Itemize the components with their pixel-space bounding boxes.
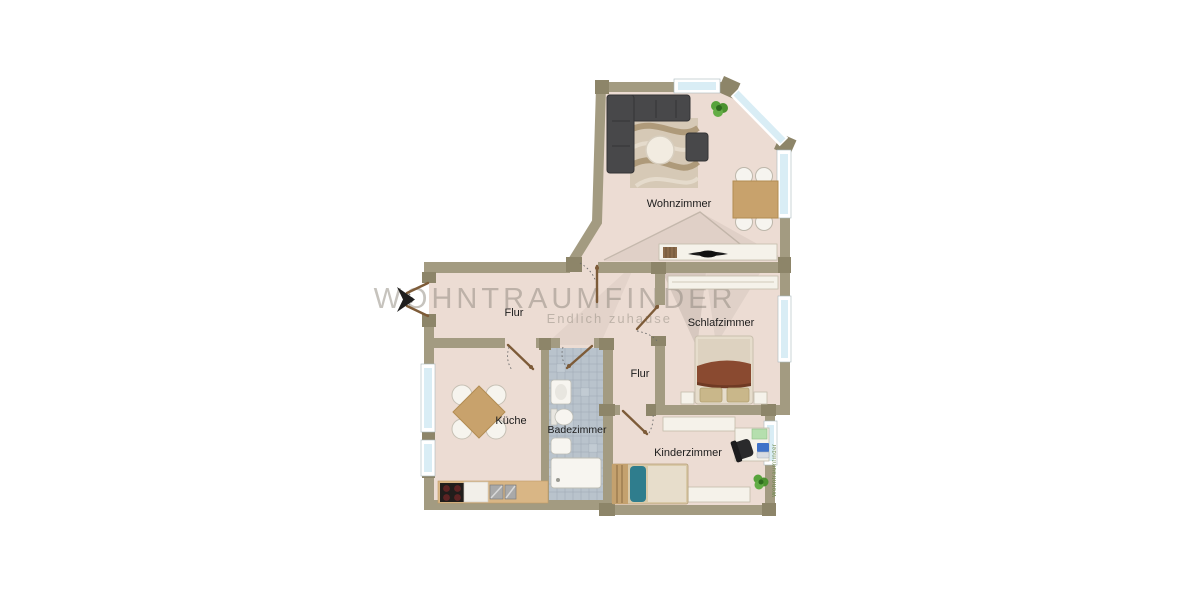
desk [730, 428, 769, 463]
toilet [551, 409, 573, 425]
coffee-table [646, 136, 674, 164]
notepad [752, 429, 767, 439]
label-flur: Flur [505, 307, 524, 319]
window-schlafzimmer [778, 296, 791, 362]
floorplan: WOHNTRAUMFINDER Endlich zuhause [0, 0, 1200, 600]
armchair [686, 133, 708, 161]
dining-table [733, 181, 778, 218]
single-bed [612, 464, 688, 504]
tv-sideboard [659, 244, 777, 260]
kitchen-sink-icon [490, 485, 516, 499]
floorplan-canvas: WOHNTRAUMFINDER Endlich zuhause [0, 0, 1200, 600]
wardrobe [668, 276, 778, 289]
label-schlafzimmer: Schlafzimmer [688, 317, 755, 329]
window-kueche-2 [421, 440, 435, 476]
shelf-bottom [688, 487, 750, 502]
label-kueche: Küche [495, 415, 526, 427]
label-wohnzimmer: Wohnzimmer [647, 198, 712, 210]
bath-sink [551, 380, 571, 404]
label-kinderzimmer: Kinderzimmer [654, 447, 722, 459]
kitchen-counter [438, 481, 548, 503]
label-badezimmer: Badezimmer [548, 424, 607, 436]
shower [551, 458, 601, 488]
label-flur-2: Flur [631, 368, 650, 380]
double-bed [695, 336, 753, 404]
window-kueche-1 [421, 364, 435, 432]
laptop-icon [757, 443, 769, 458]
watermark-tagline: Endlich zuhause [547, 311, 672, 326]
nightstand-right [754, 392, 767, 404]
watermark-side: Wohntraumfinder [772, 444, 778, 497]
window-wohnzimmer-top [674, 79, 720, 93]
shelf-top [663, 417, 735, 431]
stove-icon [440, 483, 464, 502]
nightstand-left [681, 392, 694, 404]
window-wohnzimmer-right [777, 150, 791, 218]
bidet [551, 438, 571, 454]
